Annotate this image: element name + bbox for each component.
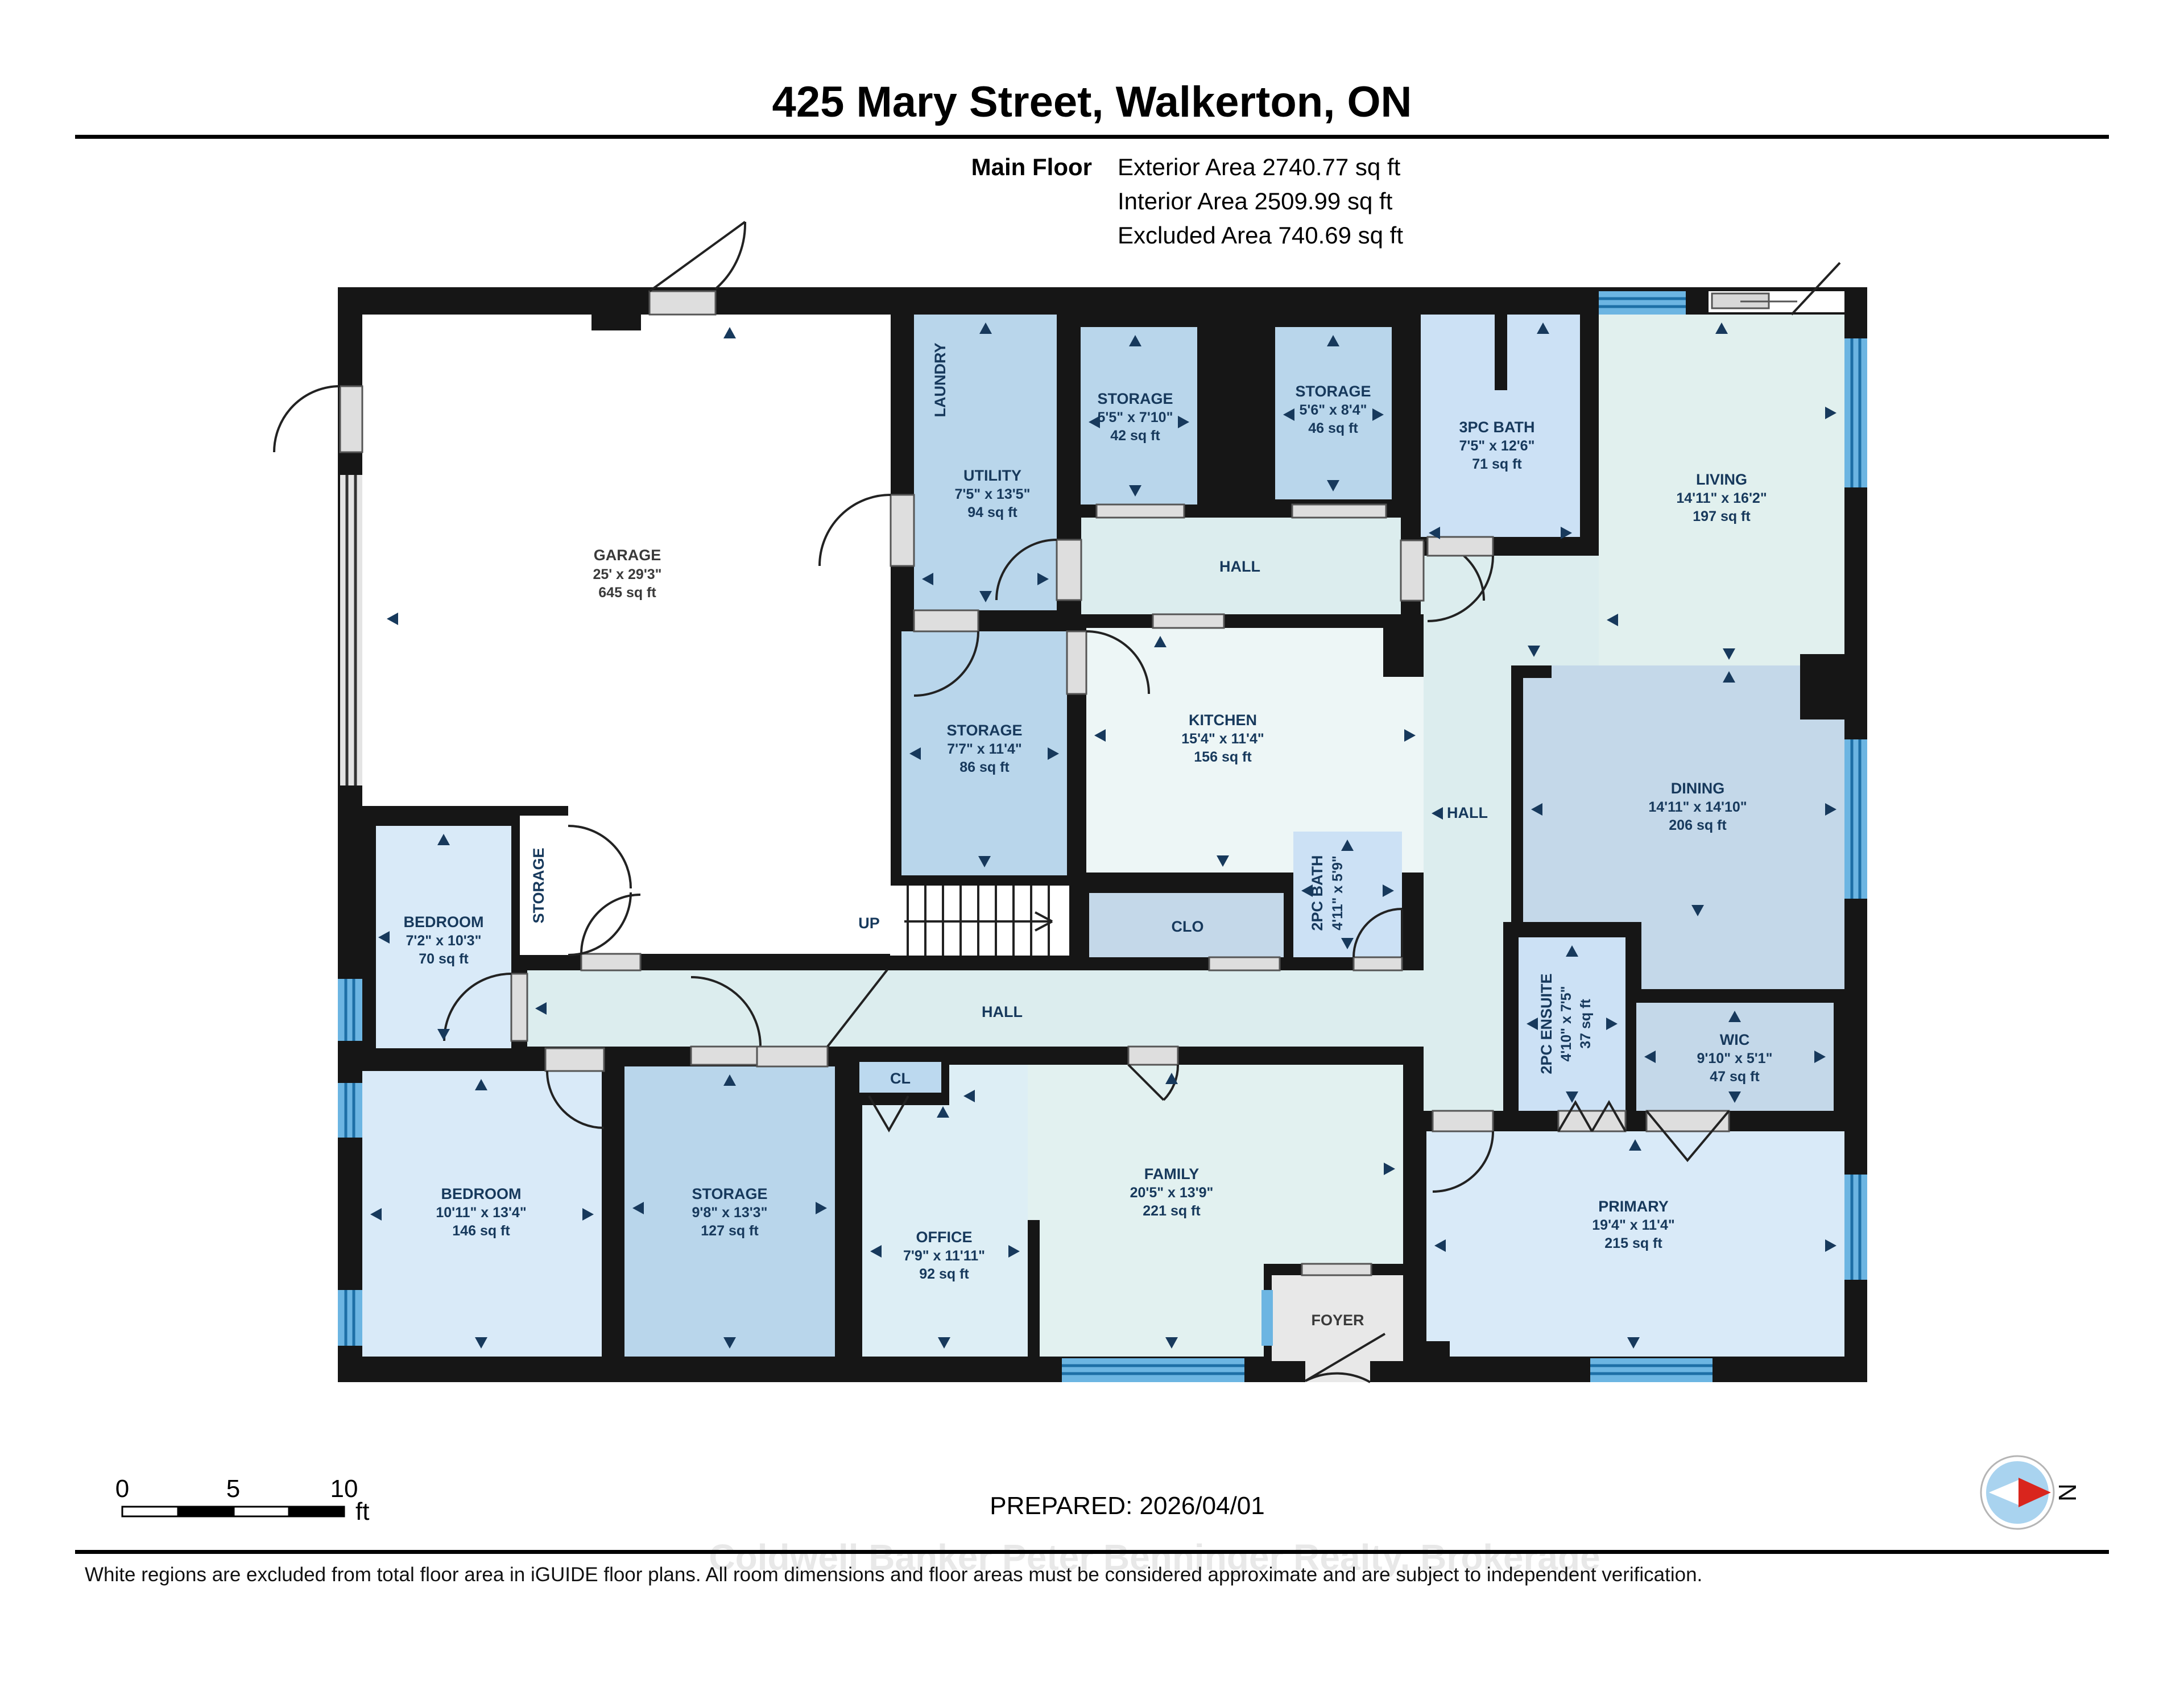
svg-text:HALL: HALL <box>982 1003 1023 1020</box>
svg-text:86 sq ft: 86 sq ft <box>959 759 1010 775</box>
svg-text:CL: CL <box>890 1070 911 1087</box>
svg-text:STORAGE: STORAGE <box>946 722 1022 739</box>
svg-text:206 sq ft: 206 sq ft <box>1669 817 1727 833</box>
svg-text:ft: ft <box>355 1498 369 1525</box>
svg-text:46 sq ft: 46 sq ft <box>1308 420 1358 436</box>
svg-text:25' x 29'3": 25' x 29'3" <box>593 567 661 582</box>
svg-text:42 sq ft: 42 sq ft <box>1110 428 1160 444</box>
svg-text:OFFICE: OFFICE <box>916 1229 973 1246</box>
svg-text:UP: UP <box>858 915 880 932</box>
svg-text:156 sq ft: 156 sq ft <box>1194 749 1252 765</box>
svg-text:71 sq ft: 71 sq ft <box>1472 456 1522 472</box>
svg-text:CLO: CLO <box>1172 918 1204 935</box>
svg-text:47 sq ft: 47 sq ft <box>1710 1069 1760 1085</box>
svg-text:5'6" x 8'4": 5'6" x 8'4" <box>1299 402 1367 418</box>
svg-text:LAUNDRY: LAUNDRY <box>932 343 949 417</box>
svg-text:2PC ENSUITE: 2PC ENSUITE <box>1538 973 1555 1074</box>
svg-text:4'11" x 5'9": 4'11" x 5'9" <box>1330 855 1346 931</box>
svg-text:UTILITY: UTILITY <box>963 467 1021 484</box>
svg-text:White regions are excluded fro: White regions are excluded from total fl… <box>85 1564 1702 1586</box>
svg-text:3PC BATH: 3PC BATH <box>1459 419 1534 436</box>
svg-text:STORAGE: STORAGE <box>1097 390 1173 407</box>
svg-text:7'2" x 10'3": 7'2" x 10'3" <box>406 933 482 949</box>
svg-text:Interior Area 2509.99 sq ft: Interior Area 2509.99 sq ft <box>1118 188 1393 214</box>
svg-text:215 sq ft: 215 sq ft <box>1604 1235 1662 1251</box>
svg-text:7'5" x 13'5": 7'5" x 13'5" <box>955 486 1031 502</box>
svg-text:7'9" x 11'11": 7'9" x 11'11" <box>903 1248 985 1264</box>
svg-text:Main Floor: Main Floor <box>971 154 1092 180</box>
svg-text:N: N <box>2053 1483 2081 1502</box>
svg-text:645 sq ft: 645 sq ft <box>598 585 656 601</box>
svg-text:Exterior Area 2740.77 sq ft: Exterior Area 2740.77 sq ft <box>1118 154 1401 180</box>
svg-text:STORAGE: STORAGE <box>1295 383 1371 400</box>
svg-text:92 sq ft: 92 sq ft <box>919 1266 969 1282</box>
svg-text:146 sq ft: 146 sq ft <box>452 1223 510 1239</box>
svg-text:4'10" x 7'5": 4'10" x 7'5" <box>1558 986 1574 1062</box>
svg-text:14'11" x 14'10": 14'11" x 14'10" <box>1648 799 1747 815</box>
svg-text:19'4" x 11'4": 19'4" x 11'4" <box>1592 1217 1674 1233</box>
svg-text:425 Mary Street, Walkerton, ON: 425 Mary Street, Walkerton, ON <box>772 78 1412 126</box>
svg-text:14'11" x 16'2": 14'11" x 16'2" <box>1676 490 1767 506</box>
svg-text:127 sq ft: 127 sq ft <box>701 1223 759 1239</box>
svg-text:0: 0 <box>115 1475 129 1503</box>
svg-text:PREPARED: 2026/04/01: PREPARED: 2026/04/01 <box>990 1492 1264 1520</box>
svg-text:HALL: HALL <box>1447 804 1488 821</box>
svg-text:BEDROOM: BEDROOM <box>404 913 484 931</box>
svg-text:10'11" x 13'4": 10'11" x 13'4" <box>436 1205 526 1221</box>
svg-text:PRIMARY: PRIMARY <box>1598 1198 1669 1215</box>
svg-text:197 sq ft: 197 sq ft <box>1693 508 1751 524</box>
svg-text:9'8" x 13'3": 9'8" x 13'3" <box>692 1205 768 1221</box>
svg-text:10: 10 <box>330 1475 358 1503</box>
svg-text:70 sq ft: 70 sq ft <box>419 951 469 967</box>
svg-text:KITCHEN: KITCHEN <box>1189 712 1257 729</box>
svg-text:15'4" x 11'4": 15'4" x 11'4" <box>1181 731 1264 747</box>
svg-text:BEDROOM: BEDROOM <box>441 1185 522 1202</box>
svg-text:LIVING: LIVING <box>1696 471 1747 488</box>
svg-text:221 sq ft: 221 sq ft <box>1143 1203 1201 1219</box>
svg-text:WIC: WIC <box>1720 1031 1749 1048</box>
svg-text:DINING: DINING <box>1671 780 1725 797</box>
svg-text:94 sq ft: 94 sq ft <box>967 505 1017 520</box>
svg-text:STORAGE: STORAGE <box>530 847 547 923</box>
svg-text:20'5" x 13'9": 20'5" x 13'9" <box>1130 1185 1214 1201</box>
svg-text:STORAGE: STORAGE <box>692 1185 767 1202</box>
svg-text:FOYER: FOYER <box>1311 1312 1364 1329</box>
svg-text:GARAGE: GARAGE <box>594 547 661 564</box>
svg-text:5: 5 <box>226 1475 240 1503</box>
svg-text:Excluded Area 740.69 sq ft: Excluded Area 740.69 sq ft <box>1118 222 1403 249</box>
svg-text:FAMILY: FAMILY <box>1144 1165 1199 1182</box>
svg-text:7'5" x 12'6": 7'5" x 12'6" <box>1459 438 1535 454</box>
svg-text:5'5" x 7'10": 5'5" x 7'10" <box>1098 410 1173 425</box>
svg-text:37 sq ft: 37 sq ft <box>1578 999 1594 1049</box>
svg-text:HALL: HALL <box>1219 558 1260 575</box>
svg-text:9'10" x 5'1": 9'10" x 5'1" <box>1697 1051 1773 1066</box>
svg-text:7'7" x 11'4": 7'7" x 11'4" <box>947 741 1022 757</box>
